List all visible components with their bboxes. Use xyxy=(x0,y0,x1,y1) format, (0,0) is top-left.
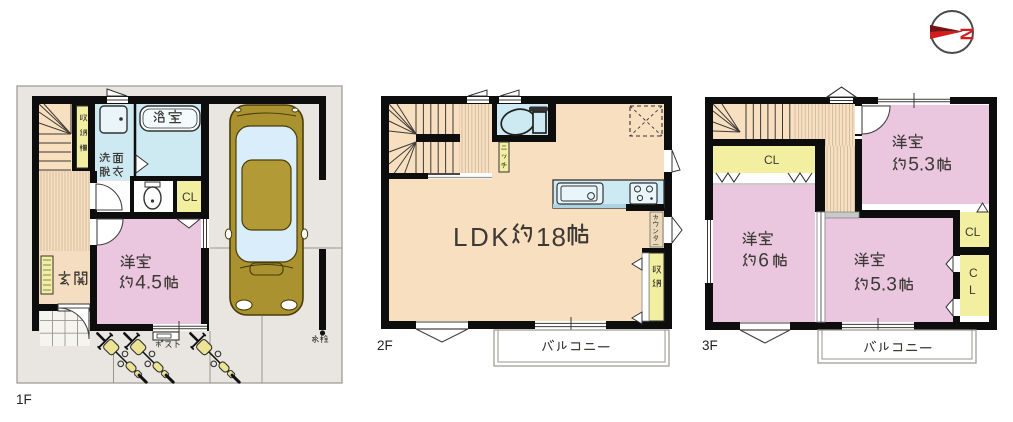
svg-text:3F: 3F xyxy=(702,338,718,353)
svg-text:N: N xyxy=(957,28,977,41)
svg-text:CL: CL xyxy=(182,190,198,204)
svg-text:18: 18 xyxy=(536,222,567,252)
svg-text:2F: 2F xyxy=(377,338,393,353)
svg-text:5.3: 5.3 xyxy=(870,275,897,296)
svg-text:C: C xyxy=(969,266,978,280)
svg-text:1F: 1F xyxy=(16,392,32,407)
svg-text:L: L xyxy=(969,283,976,297)
svg-text:5.3: 5.3 xyxy=(908,155,935,176)
svg-text:CL: CL xyxy=(764,153,780,167)
svg-text:6: 6 xyxy=(758,251,769,272)
svg-text:LDK: LDK xyxy=(453,222,511,252)
svg-text:CL: CL xyxy=(965,225,981,239)
svg-text:4.5: 4.5 xyxy=(135,273,162,294)
